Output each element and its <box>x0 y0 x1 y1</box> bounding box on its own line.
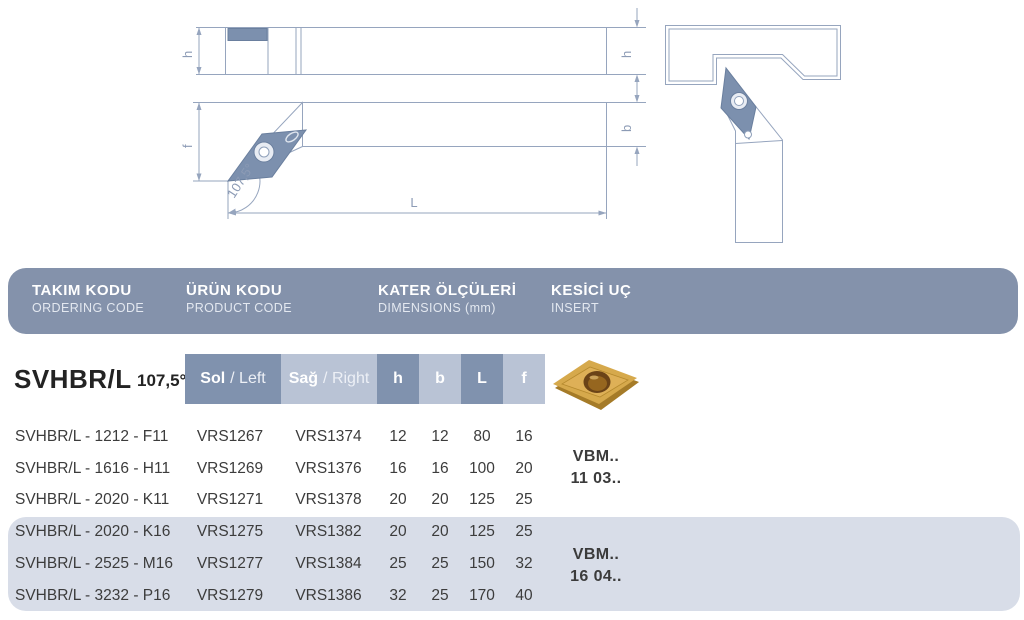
table-header-bar: TAKIM KODU ORDERING CODE ÜRÜN KODU PRODU… <box>8 268 1018 334</box>
dim-b: 12 <box>419 428 461 446</box>
dim-L: 125 <box>461 523 503 541</box>
header-title: ÜRÜN KODU <box>186 282 292 300</box>
left-code: VRS1279 <box>180 587 280 605</box>
top-view-drawing <box>196 8 646 94</box>
col-head-b: b <box>419 354 461 404</box>
label-sag: Sağ <box>289 370 318 388</box>
technical-drawing: h h f b L 107,5° <box>0 0 1024 262</box>
header-col-product: ÜRÜN KODU PRODUCT CODE <box>186 282 292 316</box>
model-title: SVHBR/L <box>14 364 132 395</box>
dim-b: 20 <box>419 491 461 509</box>
subheader-row: SVHBR/L 107,5° Sol / Left Sağ / Right h … <box>0 354 1024 406</box>
dim-L: 150 <box>461 555 503 573</box>
insert-type-line: VBM.. <box>551 446 641 468</box>
left-code: VRS1271 <box>180 491 280 509</box>
header-title: KATER ÖLÇÜLERİ <box>378 282 516 300</box>
dim-f: 32 <box>503 555 545 573</box>
dim-L: 80 <box>461 428 503 446</box>
ordering-code: SVHBR/L - 2020 - K16 <box>0 523 180 541</box>
right-code: VRS1382 <box>280 523 377 541</box>
ordering-code: SVHBR/L - 1212 - F11 <box>0 428 180 446</box>
dim-h: 20 <box>377 491 419 509</box>
dim-h: 16 <box>377 460 419 478</box>
header-subtitle: PRODUCT CODE <box>186 300 292 316</box>
col-head-left: Sol / Left <box>185 354 281 404</box>
model-angle: 107,5° <box>137 371 186 391</box>
col-head-h: h <box>377 354 419 404</box>
dim-b: 20 <box>419 523 461 541</box>
left-code: VRS1269 <box>180 460 280 478</box>
ordering-code: SVHBR/L - 1616 - H11 <box>0 460 180 478</box>
insert-type-line: 16 04.. <box>551 566 641 588</box>
table-row: SVHBR/L - 2020 - K16 VRS1275 VRS1382 20 … <box>0 516 553 548</box>
dim-b: 16 <box>419 460 461 478</box>
insert-top-icon <box>228 29 267 41</box>
dim-L: 170 <box>461 587 503 605</box>
left-code: VRS1277 <box>180 555 280 573</box>
dim-label-h-left: h <box>180 51 195 58</box>
ordering-code: SVHBR/L - 3232 - P16 <box>0 587 180 605</box>
dim-h: 32 <box>377 587 419 605</box>
dim-f: 25 <box>503 491 545 509</box>
side-view-drawing <box>193 83 646 219</box>
dim-L: 125 <box>461 491 503 509</box>
dim-f: 16 <box>503 428 545 446</box>
header-col-dimensions: KATER ÖLÇÜLERİ DIMENSIONS (mm) <box>378 282 516 316</box>
dim-h: 25 <box>377 555 419 573</box>
insert-type-line: 11 03.. <box>551 468 641 490</box>
header-col-ordering: TAKIM KODU ORDERING CODE <box>32 282 144 316</box>
dim-b: 25 <box>419 555 461 573</box>
right-code: VRS1374 <box>280 428 377 446</box>
header-subtitle: DIMENSIONS (mm) <box>378 300 516 316</box>
ordering-code: SVHBR/L - 2020 - K11 <box>0 491 180 509</box>
header-subtitle: INSERT <box>551 300 631 316</box>
header-title: TAKIM KODU <box>32 282 144 300</box>
header-col-insert: KESİCİ UÇ INSERT <box>551 282 631 316</box>
insert-type-line: VBM.. <box>551 544 641 566</box>
left-code: VRS1275 <box>180 523 280 541</box>
table-row: SVHBR/L - 1212 - F11 VRS1267 VRS1374 12 … <box>0 421 553 453</box>
dim-label-b: b <box>619 125 634 132</box>
dim-label-f: f <box>180 144 195 148</box>
label-left: / Left <box>230 370 266 388</box>
right-code: VRS1376 <box>280 460 377 478</box>
dim-b: 25 <box>419 587 461 605</box>
right-code: VRS1378 <box>280 491 377 509</box>
header-title: KESİCİ UÇ <box>551 282 631 300</box>
dim-f: 25 <box>503 523 545 541</box>
label-sol: Sol <box>200 370 225 388</box>
dim-h: 20 <box>377 523 419 541</box>
dim-h: 12 <box>377 428 419 446</box>
label-right: / Right <box>323 370 369 388</box>
dim-label-L: L <box>410 195 417 210</box>
insert-type-group-1: VBM.. 11 03.. <box>551 446 641 490</box>
ordering-code: SVHBR/L - 2525 - M16 <box>0 555 180 573</box>
dim-f: 20 <box>503 460 545 478</box>
left-code: VRS1267 <box>180 428 280 446</box>
col-head-L: L <box>461 354 503 404</box>
table-row: SVHBR/L - 1616 - H11 VRS1269 VRS1376 16 … <box>0 453 553 485</box>
catalog-page: h h f b L 107,5° TAKIM KODU ORDERING COD… <box>0 0 1024 620</box>
insert-type-group-2: VBM.. 16 04.. <box>551 544 641 588</box>
table-row: SVHBR/L - 2020 - K11 VRS1271 VRS1378 20 … <box>0 484 553 516</box>
dim-label-h-right: h <box>619 51 634 58</box>
col-head-right: Sağ / Right <box>281 354 377 404</box>
dim-f: 40 <box>503 587 545 605</box>
right-code: VRS1384 <box>280 555 377 573</box>
dim-L: 100 <box>461 460 503 478</box>
table-row: SVHBR/L - 3232 - P16 VRS1279 VRS1386 32 … <box>0 580 553 612</box>
front-view-drawing <box>666 26 841 243</box>
header-subtitle: ORDERING CODE <box>32 300 144 316</box>
col-head-f: f <box>503 354 545 404</box>
table-row: SVHBR/L - 2525 - M16 VRS1277 VRS1384 25 … <box>0 548 553 580</box>
insert-photo <box>549 356 645 412</box>
right-code: VRS1386 <box>280 587 377 605</box>
